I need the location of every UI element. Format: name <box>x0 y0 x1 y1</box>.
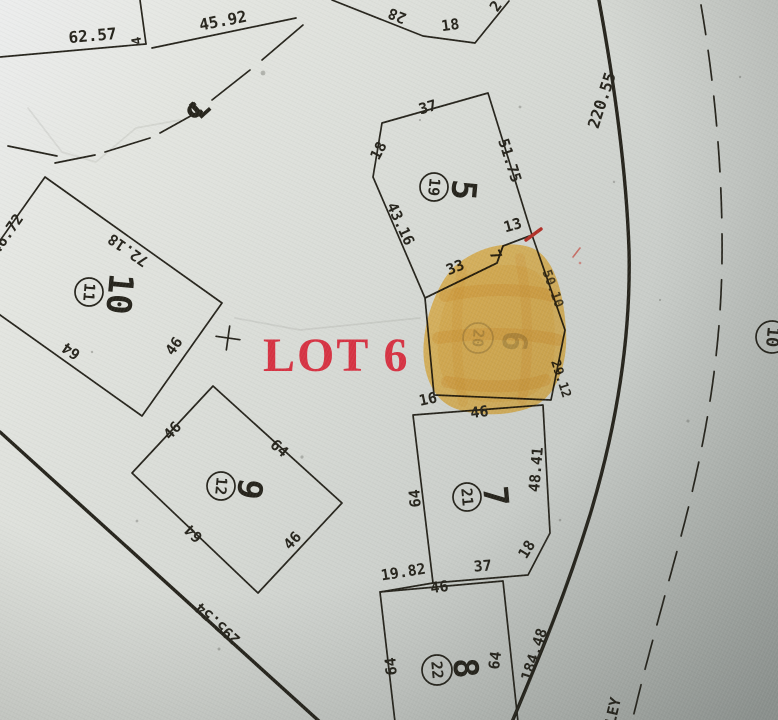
lot5-dim-top: 37 <box>416 96 438 118</box>
lot7-dim-top: 46 <box>469 402 489 422</box>
lot7-number: 7 <box>474 484 516 508</box>
lot9-labels: 12 9 46 64 64 46 <box>160 418 305 553</box>
lot8-outline <box>380 581 518 720</box>
plat-map-svg: ℄ 62.57 45.92 4 28 18 2 220.55 184.48 29… <box>0 0 778 720</box>
corner-tick-4: 4 <box>129 35 145 45</box>
dim-2-partial: 2 <box>486 0 506 15</box>
lot7-dim-lower-right: 18 <box>514 537 539 562</box>
lot5-dim-left: 43.16 <box>383 200 418 249</box>
lot7-circled-number: 21 <box>457 487 477 507</box>
road-right-dashed-line <box>632 5 722 720</box>
red-dot <box>579 262 582 265</box>
lot7-dim-19-82: 19.82 <box>380 560 427 585</box>
dim-18-top: 18 <box>440 15 460 35</box>
lot7-dim-left: 64 <box>405 489 425 509</box>
lot5-labels: 19 5 37 18 43.16 51.75 <box>366 96 525 248</box>
lot5-dim-right: 51.75 <box>494 136 525 185</box>
lot9-dim-top-right: 64 <box>267 436 292 461</box>
plat-map-photo: ℄ 62.57 45.92 4 28 18 2 220.55 184.48 29… <box>0 0 778 720</box>
lot8-dim-top: 46 <box>429 577 449 597</box>
lot10-dim-left-outer: 46.72 <box>0 210 27 257</box>
red-scribble <box>573 248 580 257</box>
lot8-labels: 22 8 46 64 64 <box>381 577 505 685</box>
street-name-partial: LEY <box>601 696 625 720</box>
lot10-circled-number: 11 <box>79 282 99 302</box>
road-left-thick-line <box>0 432 320 720</box>
lot7-dim-bottom: 37 <box>473 556 492 575</box>
lot6-red-annotation: LOT 6 <box>263 329 410 382</box>
lot10-dim-right: 46 <box>161 334 186 359</box>
lot8-dim-right: 64 <box>485 650 505 670</box>
lot10-number: 10 <box>97 272 140 316</box>
street-centerline-dashed <box>8 25 303 163</box>
right-edge-parcel-marker: 10 <box>756 321 778 353</box>
lot8-circled-number: 22 <box>427 660 447 680</box>
dim-62-57: 62.57 <box>68 24 118 47</box>
lot7-labels: 21 7 16 46 64 48.41 18 37 19.82 <box>380 388 547 584</box>
lot8-number: 8 <box>444 656 486 680</box>
lot5-number: 5 <box>442 178 484 202</box>
lot7-dim-16: 16 <box>417 388 438 409</box>
centerline-symbol: ℄ <box>180 92 217 130</box>
lot5-dim-upper-left: 18 <box>366 138 390 162</box>
lot5-circled-number: 19 <box>424 177 444 197</box>
dim-184-48: 184.48 <box>517 626 551 683</box>
lot8-dim-left: 64 <box>381 657 401 677</box>
lot9-number: 9 <box>228 475 271 502</box>
lot9-circled-number: 12 <box>211 476 231 496</box>
lot9-dim-bottom-right: 46 <box>280 528 305 553</box>
dim-295-54: 295.54 <box>191 599 243 649</box>
right-edge-circled-number: 10 <box>761 326 778 348</box>
lot6-dim-13: 13 <box>501 214 523 236</box>
lot9-dim-bottom-left: 64 <box>181 521 206 546</box>
lot7-dim-right: 48.41 <box>525 446 547 493</box>
lot6-highlight-marker <box>423 244 566 414</box>
lot10-labels: 11 10 72.18 64 46 46.72 <box>0 210 186 363</box>
plus-cross-mark <box>214 324 241 351</box>
dim-28: 28 <box>385 4 408 27</box>
